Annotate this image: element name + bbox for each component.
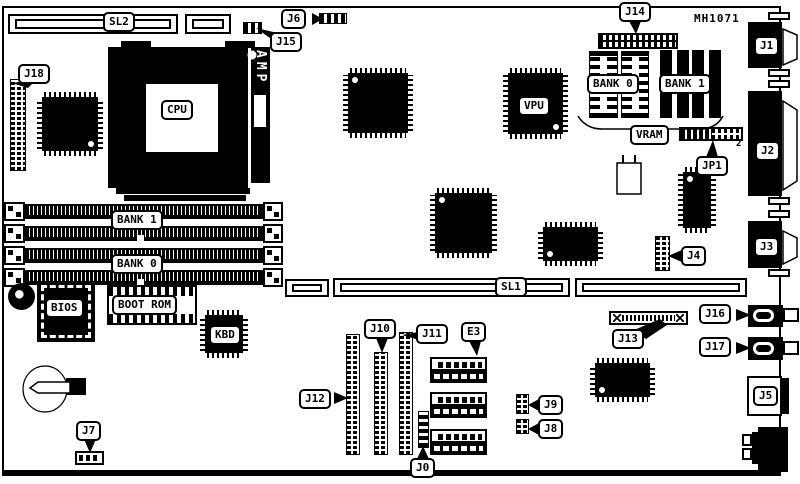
- dsub-shroud-j3: [783, 231, 797, 264]
- label-j14: J14: [619, 2, 651, 22]
- capacitor: [617, 163, 641, 194]
- label-j4: J4: [681, 246, 706, 266]
- label-j13: J13: [612, 329, 644, 349]
- callout-pointer-j7: [84, 439, 96, 453]
- part-number: MH1071: [694, 12, 740, 25]
- label-e3: E3: [461, 322, 486, 342]
- label-vram-bank1: BANK 1: [659, 74, 711, 94]
- label-j16: J16: [699, 304, 731, 324]
- label-j9: J9: [538, 395, 563, 415]
- callout-pointer-jp1: [706, 140, 718, 157]
- label-cpu: CPU: [161, 100, 193, 120]
- dsub-shroud-j2: [783, 101, 797, 190]
- callout-pointer-j6: [312, 13, 323, 25]
- label-j0: J0: [410, 458, 435, 478]
- label-boot-rom: BOOT ROM: [112, 295, 177, 315]
- label-j7: J7: [76, 421, 101, 441]
- label-j11: J11: [416, 324, 448, 344]
- callout-pointer-j14: [629, 21, 641, 34]
- callout-pointer-j17: [736, 342, 751, 354]
- callout-pointer-j16: [736, 309, 751, 321]
- label-bios: BIOS: [45, 298, 84, 318]
- amp-hole: [248, 51, 257, 60]
- jp1-pin2-marker: 2: [736, 139, 742, 149]
- label-j17: J17: [699, 337, 731, 357]
- label-simm-bank1: BANK 1: [111, 210, 163, 230]
- label-sl2: SL2: [103, 12, 135, 32]
- label-j10: J10: [364, 319, 396, 339]
- label-sl1: SL1: [495, 277, 527, 297]
- callout-pointer-e3: [469, 341, 481, 356]
- label-vram: VRAM: [630, 125, 669, 145]
- callout-pointer-j4: [668, 250, 682, 262]
- label-vpu: VPU: [518, 96, 550, 116]
- label-j8: J8: [538, 419, 563, 439]
- label-j15: J15: [270, 32, 302, 52]
- motherboard-diagram: AMP: [0, 0, 800, 484]
- label-j6: J6: [281, 9, 306, 29]
- label-vram-bank0: BANK 0: [587, 74, 639, 94]
- label-j3: J3: [754, 237, 779, 257]
- label-j18: J18: [18, 64, 50, 84]
- label-j12: J12: [299, 389, 331, 409]
- label-jp1: JP1: [696, 156, 728, 176]
- callout-pointer-j10: [376, 338, 388, 353]
- label-kbd: KBD: [209, 325, 241, 345]
- callout-pointer-j12: [334, 392, 348, 404]
- label-simm-bank0: BANK 0: [111, 254, 163, 274]
- battery-clip: [30, 382, 70, 393]
- annotation-layer: [0, 0, 800, 484]
- label-j1: J1: [754, 36, 779, 56]
- label-j2: J2: [755, 141, 780, 161]
- dsub-shroud-j1: [783, 29, 797, 65]
- label-j5: J5: [753, 386, 778, 406]
